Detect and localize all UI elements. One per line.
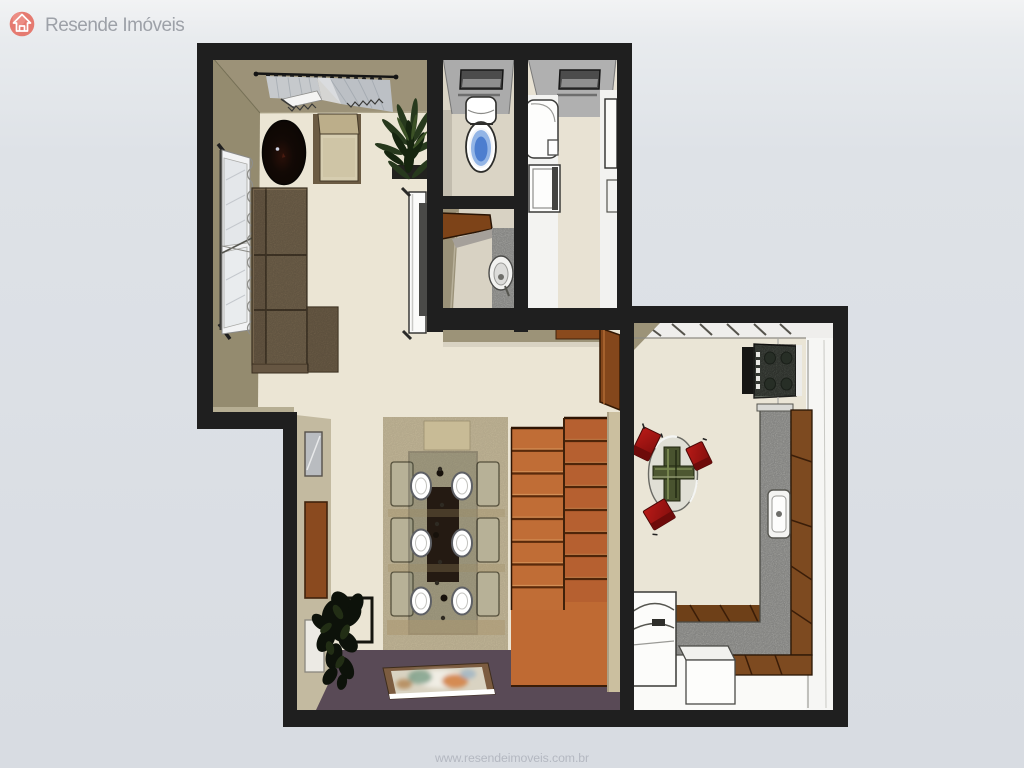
svg-text:www.resendeimoveis.com.br: www.resendeimoveis.com.br	[434, 751, 589, 765]
svg-text:Resende Imóveis: Resende Imóveis	[45, 15, 184, 36]
